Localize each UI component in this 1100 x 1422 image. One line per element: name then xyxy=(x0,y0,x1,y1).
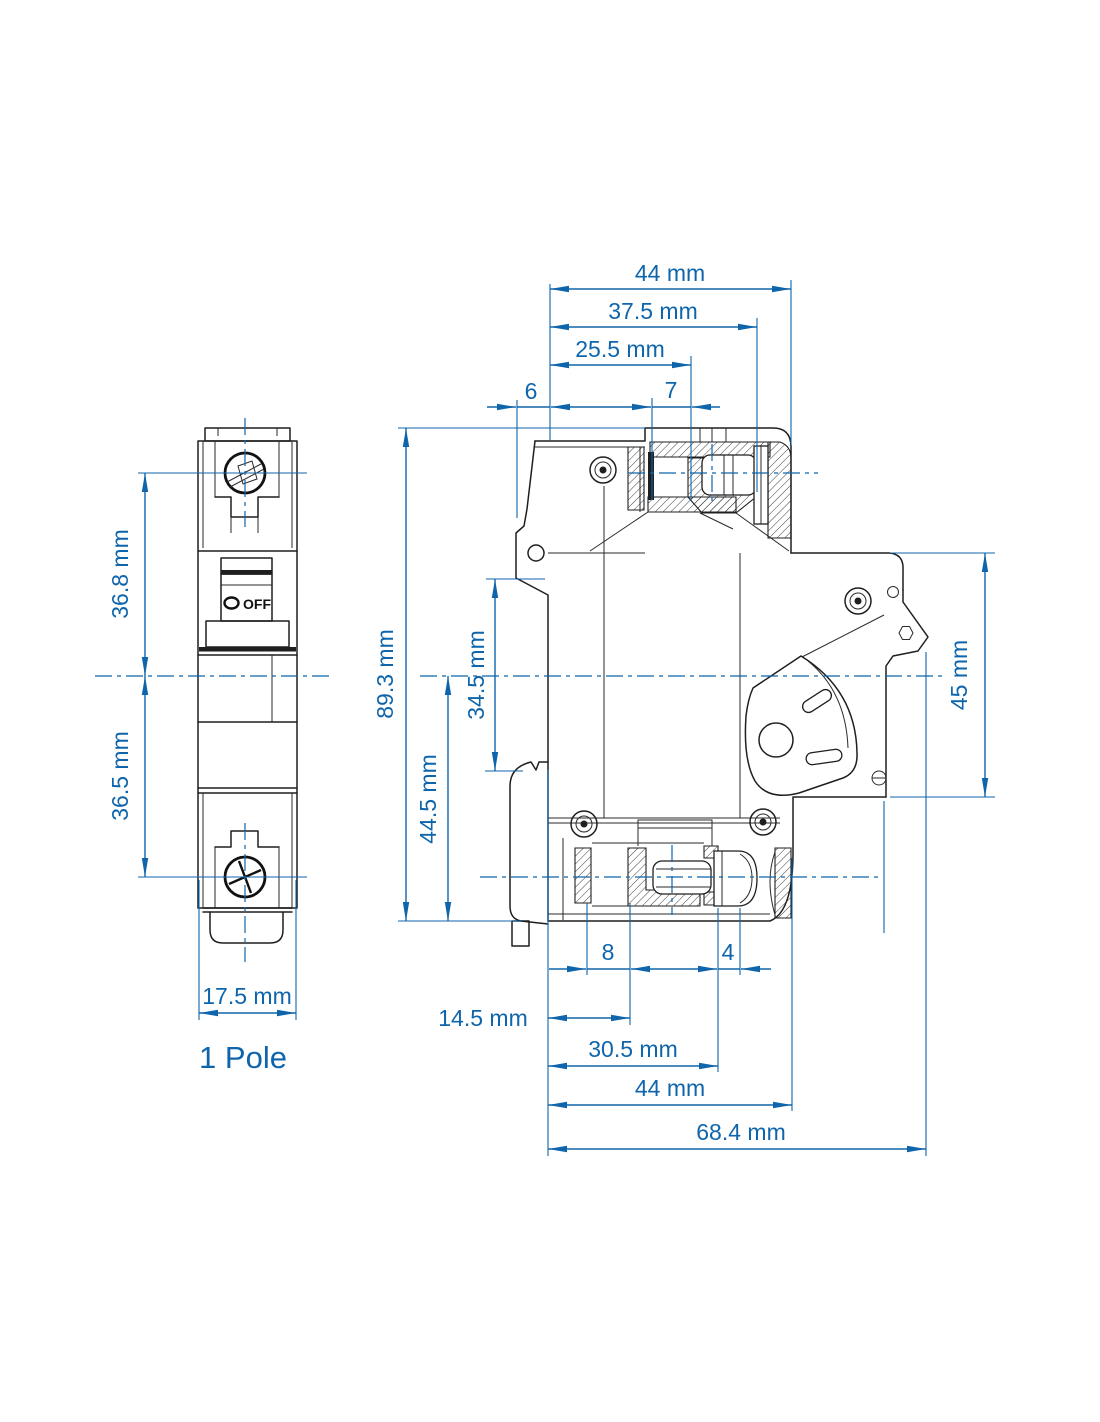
side-view xyxy=(510,428,928,946)
mcb-dimension-drawing: OFF xyxy=(0,0,1100,1422)
rivet-icon xyxy=(571,811,597,837)
dim-height-34-5-label: 34.5 mm xyxy=(463,630,489,719)
dim-height-overall-label: 89.3 mm xyxy=(372,629,398,718)
dim-bottom-14-5-label: 14.5 mm xyxy=(438,1005,527,1031)
dim-top-6-label: 6 xyxy=(525,378,538,404)
dim-front-width-label: 17.5 mm xyxy=(202,983,291,1009)
dim-bottom-8-label: 8 xyxy=(602,939,615,965)
hex-recess-icon xyxy=(899,627,913,640)
front-top-terminal xyxy=(203,441,292,548)
front-bottom-cap xyxy=(210,912,283,943)
dim-top-37-5-label: 37.5 mm xyxy=(608,298,697,324)
off-indicator-icon xyxy=(225,598,239,609)
dim-bottom-68-4-label: 68.4 mm xyxy=(696,1119,785,1145)
terminal-screw-head-side xyxy=(714,851,757,906)
lever-slot xyxy=(805,749,842,766)
pin-hole-icon xyxy=(888,587,899,598)
dim-right-45-label: 45 mm xyxy=(946,640,972,710)
rivet-icon xyxy=(845,588,871,614)
din-clip xyxy=(510,762,548,946)
dim-bottom-30-5-label: 30.5 mm xyxy=(588,1036,677,1062)
rivet-icon xyxy=(750,809,776,835)
front-toggle-off: OFF xyxy=(198,558,297,655)
dim-top-25-5-label: 25.5 mm xyxy=(575,336,664,362)
terminal-screw-side xyxy=(702,455,756,495)
drawing-canvas: OFF xyxy=(0,0,1100,1422)
mount-hole-icon xyxy=(528,545,544,561)
side-top-right-face xyxy=(791,553,903,590)
side-bottom-terminal-section xyxy=(548,809,791,920)
front-bottom-terminal xyxy=(203,793,292,908)
side-right-details xyxy=(845,587,913,786)
centerlines xyxy=(95,418,944,962)
rivet-icon xyxy=(590,457,616,483)
dim-front-36-5-label: 36.5 mm xyxy=(107,731,133,820)
dimensions: 44 mm 37.5 mm 25.5 mm 6 7 89.3 mm 44.5 m… xyxy=(107,260,985,1149)
front-body-outline xyxy=(198,441,297,908)
dim-top-overall-label: 44 mm xyxy=(635,260,705,286)
pole-count-label: 1 Pole xyxy=(199,1040,287,1075)
dim-front-36-8-label: 36.8 mm xyxy=(107,529,133,618)
dim-top-7-label: 7 xyxy=(665,377,678,403)
lever-grip-hole xyxy=(759,723,793,757)
front-view: OFF xyxy=(198,428,297,943)
lever-slot xyxy=(800,687,833,714)
extension-lines xyxy=(199,280,995,1156)
din-clip-foot xyxy=(512,921,529,946)
dim-height-44-5-label: 44.5 mm xyxy=(415,754,441,843)
toggle-lever xyxy=(745,615,884,795)
din-release-tab xyxy=(886,590,928,797)
dim-bottom-4-label: 4 xyxy=(722,939,735,965)
dim-bottom-44-label: 44 mm xyxy=(635,1075,705,1101)
toggle-off-label: OFF xyxy=(243,596,271,612)
